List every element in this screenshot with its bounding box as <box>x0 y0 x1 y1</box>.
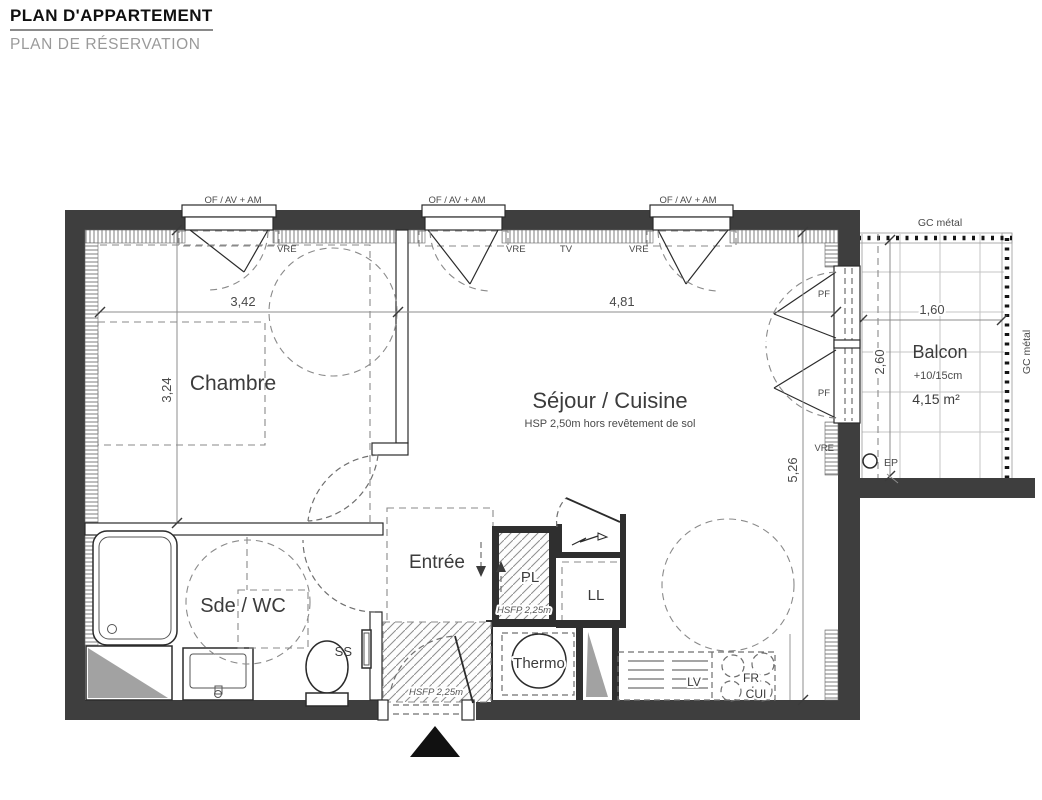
room-label-balcon: Balcon <box>912 342 967 362</box>
entrance-ceiling-note: HSFP 2,25m <box>409 687 463 698</box>
window-3-label: OF / AV + AM <box>659 195 716 206</box>
ss-label: SS <box>335 644 353 659</box>
pf-label-2: PF <box>818 388 830 399</box>
closet-pl: PL HSFP 2,25m <box>492 526 556 626</box>
balcon-level: +10/15cm <box>914 370 963 382</box>
window-1: OF / AV + AM VRE <box>179 195 297 290</box>
partition-sde-entree <box>370 612 382 700</box>
bathroom: SS Sde / WC <box>86 531 371 706</box>
electrical-panel-icon <box>572 536 598 545</box>
railing-label-top: GC métal <box>918 217 962 229</box>
room-label-sde-wc: Sde / WC <box>200 595 286 617</box>
hob-burner <box>721 681 741 701</box>
hob-burner <box>722 655 744 677</box>
bedroom: Chambre <box>98 245 397 523</box>
entry-zone: Entrée PL HSFP 2,25m <box>387 498 626 628</box>
living-room: Séjour / Cuisine HSP 2,50m hors revêteme… <box>525 388 795 651</box>
water-heater-zone: Thermo <box>486 620 619 700</box>
railing-frame-right <box>1002 233 1012 483</box>
tv-outlet-label: TV <box>560 244 573 255</box>
dim-balcon-width: 1,60 <box>919 302 944 317</box>
right-wall-bottom <box>838 422 860 720</box>
niche-door-leaf <box>566 498 620 522</box>
room-label-entree: Entrée <box>409 552 465 573</box>
balcony: 1,60 2,60 GC métal GC métal Balcon +10/1… <box>838 217 1035 498</box>
ep-label: EP <box>884 457 898 469</box>
window-2-label: OF / AV + AM <box>428 195 485 206</box>
left-wall <box>65 210 85 720</box>
window-2-vre: VRE <box>506 244 526 255</box>
window-1-label: OF / AV + AM <box>204 195 261 206</box>
label-cui: CUI <box>746 687 767 701</box>
room-label-thermo: Thermo <box>513 655 565 672</box>
floor-plan-page: PLAN D'APPARTEMENT PLAN DE RÉSERVATION <box>0 0 1042 800</box>
duct-kitchen <box>586 632 608 697</box>
arrow-down-icon <box>476 566 486 577</box>
towel-radiator <box>362 630 371 668</box>
dim-balcon-depth: 2,60 <box>872 349 887 374</box>
balcon-area: 4,15 m² <box>912 391 960 407</box>
room-label-ll: LL <box>588 587 605 604</box>
partition-chambre-sejour <box>396 230 408 443</box>
turning-circle-sejour <box>662 519 794 651</box>
railing-label-right: GC métal <box>1021 330 1033 374</box>
sejour-ceiling-note: HSP 2,50m hors revêtement de sol <box>525 418 696 430</box>
entrance: HSFP 2,25m <box>378 622 491 757</box>
pf-label-1: PF <box>818 289 830 300</box>
dim-chambre-depth: 3,24 <box>159 377 174 402</box>
floor-plan-drawing: 1,60 2,60 GC métal GC métal Balcon +10/1… <box>0 0 1042 800</box>
rainwater-pipe-icon <box>863 454 877 468</box>
label-lv: LV <box>687 675 701 689</box>
bathtub <box>93 531 177 645</box>
room-label-chambre: Chambre <box>190 372 276 395</box>
room-label-sejour: Séjour / Cuisine <box>532 388 687 413</box>
window-1-vre: VRE <box>277 244 297 255</box>
entrance-marker-icon <box>410 726 460 757</box>
dim-chambre-width: 3,42 <box>230 294 255 309</box>
kitchen-counter: LV FR CUI <box>618 634 790 701</box>
washbasin <box>183 648 253 700</box>
electrical-niche <box>556 498 626 558</box>
balcony-bottom-wall <box>838 478 1035 498</box>
pl-ceiling-note: HSFP 2,25m <box>497 605 551 616</box>
window-3-vre: VRE <box>629 244 649 255</box>
right-wall-top <box>838 210 860 267</box>
room-label-pl: PL <box>521 569 539 586</box>
dim-sejour-width: 4,81 <box>609 294 634 309</box>
balcony-door-vre: VRE <box>814 443 834 454</box>
dim-sejour-depth: 5,26 <box>785 457 800 482</box>
label-fr: FR <box>743 671 759 685</box>
